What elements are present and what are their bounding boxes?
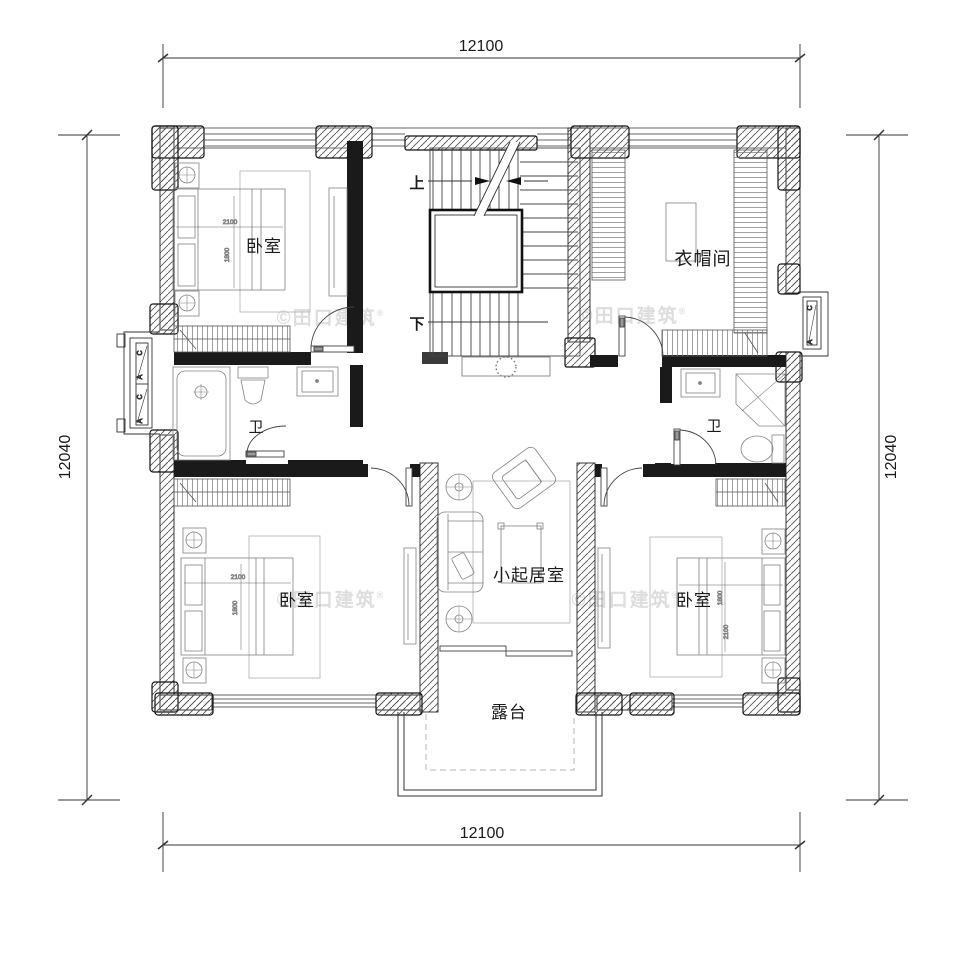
floor-plan-page: ©田口建筑® ©田口建筑® ©田口建筑® ©田口建筑® [0, 0, 960, 960]
bed-dim-width: 1800 [717, 590, 724, 605]
toilet-tank [772, 435, 784, 463]
window-marker-c: C [137, 394, 144, 399]
toilet-tank [238, 367, 268, 378]
bedroom-bottom-left: 2100 1800 [174, 479, 416, 683]
window-marker-a: A [137, 374, 144, 379]
wardrobe [592, 150, 625, 280]
sliding-door [506, 651, 572, 656]
room-label-bath: 卫 [706, 418, 721, 435]
watermark: ©田口建筑® [579, 304, 688, 327]
window-marker-a: A [807, 339, 814, 344]
bed-dim-length: 2100 [723, 624, 730, 639]
roof-overhang-dashed [426, 714, 574, 770]
stair-arrow [475, 177, 490, 185]
sofa-pillow [451, 552, 475, 580]
window-marker-c: C [137, 350, 144, 355]
bathroom-left [173, 367, 338, 460]
console-table [462, 357, 550, 376]
floor-plan-canvas: ©田口建筑® ©田口建筑® ©田口建筑® ©田口建筑® [0, 0, 960, 960]
room-label-bedroom: 卧室 [676, 591, 712, 610]
door-swing [680, 430, 716, 465]
room-label-bedroom: 卧室 [246, 237, 282, 256]
stair-void [430, 210, 522, 292]
bathtub [173, 367, 230, 460]
watermark: ©田口建筑® [277, 306, 386, 329]
dim-left: 12040 [57, 435, 74, 480]
dim-bottom: 12100 [460, 825, 505, 842]
stair-arrow [506, 177, 521, 185]
stair-down-label: 下 [409, 316, 424, 333]
bedroom-bottom-right: 1800 2100 [598, 479, 785, 683]
bay-window-left: C A C A [117, 332, 160, 434]
tv-cabinet [329, 188, 347, 296]
pillow [185, 611, 202, 651]
pillow [764, 611, 780, 651]
room-label-terrace: 露台 [491, 703, 527, 722]
dim-top: 12100 [459, 38, 504, 55]
plant [496, 357, 516, 377]
room-label-bath: 卫 [248, 419, 263, 436]
bed-dim-length: 2100 [223, 219, 238, 226]
wardrobe [174, 479, 290, 506]
bed-dim-width: 1800 [232, 600, 239, 615]
rug [473, 481, 570, 623]
door-swing [604, 468, 642, 506]
stair-up-label: 上 [409, 175, 424, 192]
bathroom-right [681, 369, 785, 463]
room-label-bedroom: 卧室 [279, 591, 315, 610]
room-label-living: 小起居室 [493, 566, 565, 585]
staircase: 上 下 [409, 142, 580, 377]
living-room [437, 445, 570, 632]
wardrobe [716, 479, 785, 506]
sliding-door [440, 646, 506, 651]
pillow [178, 196, 195, 238]
pillow [185, 565, 202, 605]
window-right: C A [798, 292, 828, 356]
wardrobe [734, 150, 767, 333]
toilet [741, 436, 773, 462]
tv-cabinet [404, 548, 416, 644]
armchair [490, 445, 558, 511]
window-marker-c: C [807, 305, 814, 310]
room-label-cloakroom: 衣帽间 [675, 249, 732, 269]
toilet [241, 380, 265, 404]
dim-right: 12040 [883, 435, 900, 480]
bed-dim-width: 1800 [224, 247, 231, 262]
terrace-parapet [398, 712, 602, 796]
stair-treads-lower [433, 292, 518, 356]
window-marker-a: A [137, 418, 144, 423]
pillow [178, 244, 195, 286]
bed-dim-length: 2100 [231, 574, 246, 581]
door-swing [371, 468, 409, 506]
